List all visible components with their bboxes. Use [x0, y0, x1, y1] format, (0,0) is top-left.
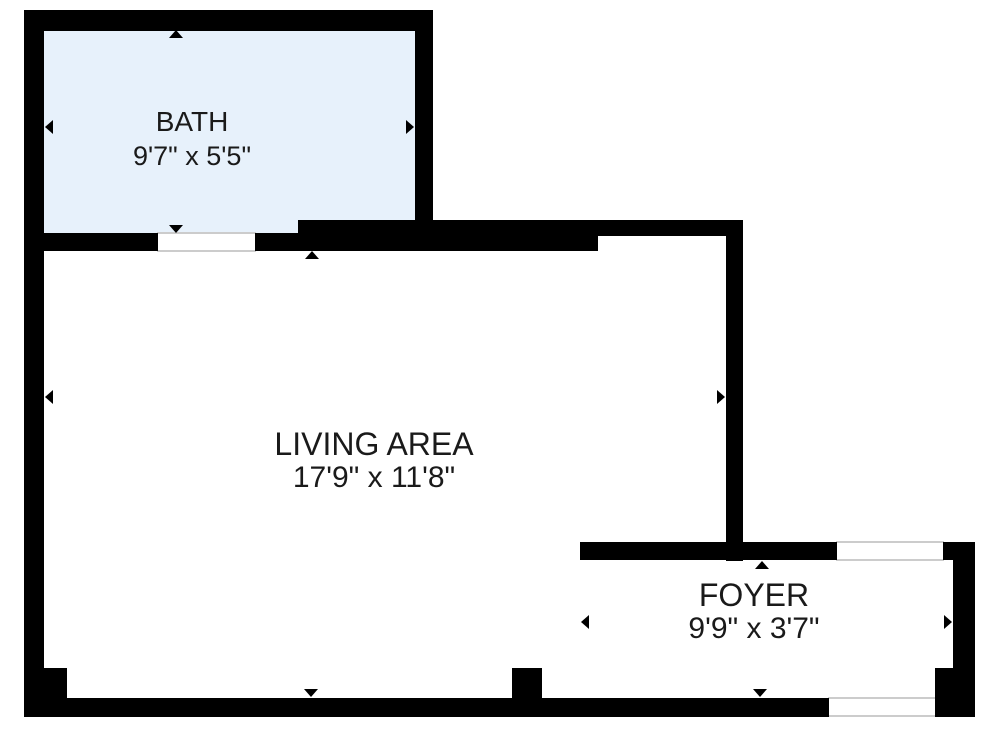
wall-living-top-thin	[597, 220, 743, 236]
dimension-arrow-living-down-icon	[304, 689, 318, 697]
dimension-arrow-bath-down-icon	[169, 225, 183, 233]
dimension-arrow-foyer-down-icon	[753, 689, 767, 697]
dimension-arrow-living-right-icon	[717, 390, 725, 404]
wall-foyer-top-right-block	[943, 542, 975, 560]
dimension-arrow-living-left-icon	[45, 390, 53, 404]
floor-plan: BATH 9'7" x 5'5" LIVING AREA 17'9" x 11'…	[0, 0, 1000, 738]
entry-door-opening	[828, 697, 935, 717]
bath-name: BATH	[133, 105, 251, 139]
bath-label: BATH 9'7" x 5'5"	[133, 105, 251, 173]
wall-bath-bottom-left	[44, 233, 158, 251]
living-area-dimensions: 17'9" x 11'8"	[274, 461, 473, 495]
dimension-arrow-foyer-up-icon	[755, 561, 769, 569]
foyer-dimensions: 9'9" x 3'7"	[688, 612, 819, 646]
wall-bath-bottom-mid	[255, 233, 299, 251]
dimension-arrow-foyer-right-icon	[944, 615, 952, 629]
wall-bottom-left-bump	[44, 668, 67, 699]
wall-living-top-thick	[298, 220, 598, 251]
wall-bath-top	[24, 10, 433, 31]
foyer-label: FOYER 9'9" x 3'7"	[688, 578, 819, 646]
wall-foyer-left-stub	[512, 668, 542, 699]
foyer-name: FOYER	[688, 578, 819, 612]
dimension-arrow-bath-right-icon	[406, 120, 414, 134]
bath-door-opening	[157, 232, 256, 252]
wall-foyer-top	[580, 542, 837, 560]
dimension-arrow-bath-up-icon	[169, 30, 183, 38]
wall-bottom	[24, 698, 829, 717]
wall-living-right	[726, 220, 743, 561]
foyer-window-opening	[836, 541, 944, 561]
bath-dimensions: 9'7" x 5'5"	[133, 139, 251, 173]
dimension-arrow-living-up-icon	[305, 251, 319, 259]
living-area-name: LIVING AREA	[274, 427, 473, 461]
wall-foyer-bottom-right-block	[935, 668, 975, 717]
living-area-label: LIVING AREA 17'9" x 11'8"	[274, 427, 473, 495]
dimension-arrow-bath-left-icon	[45, 120, 53, 134]
dimension-arrow-foyer-left-icon	[581, 615, 589, 629]
wall-foyer-right	[953, 559, 975, 669]
wall-left	[24, 10, 44, 717]
wall-bath-right	[415, 10, 433, 251]
